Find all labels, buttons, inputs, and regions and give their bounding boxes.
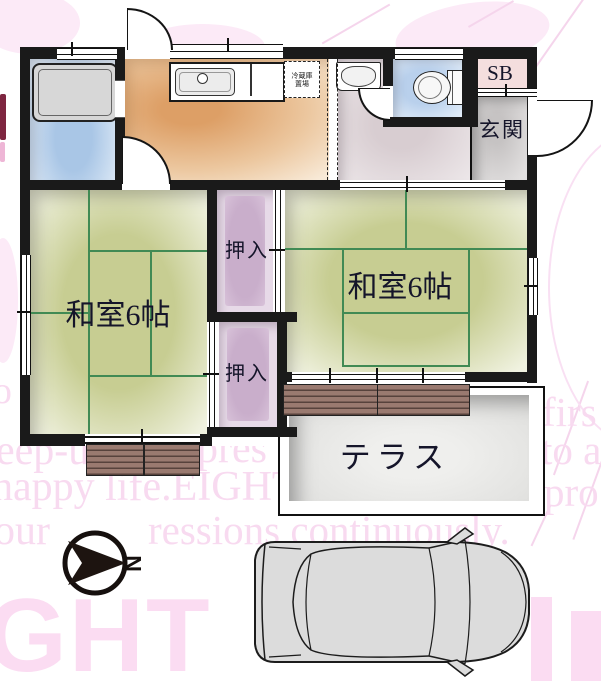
floorplan-image: co eep-u pres happy life.EIGHT our ressi…	[0, 0, 601, 681]
closet-upper-sliding	[273, 190, 283, 312]
vanity-bowl	[341, 66, 376, 87]
tatami-line	[88, 375, 207, 377]
window-tick	[227, 38, 229, 52]
kitchen-counter	[169, 62, 285, 102]
wall-closet-mid	[207, 312, 297, 322]
deck-right	[283, 384, 470, 416]
terrace-label: テラス	[300, 432, 490, 477]
wall-left	[20, 47, 30, 446]
window-tick	[329, 368, 331, 383]
window-tick	[422, 368, 424, 383]
faucet	[197, 73, 208, 84]
window-tick	[17, 311, 31, 313]
watermark-big-letters: GHT	[0, 584, 212, 681]
entrance-label: 玄関	[476, 114, 528, 144]
bathtub	[32, 63, 118, 122]
pink-edge-mark	[0, 142, 5, 162]
toilet-bowl-inner	[418, 76, 442, 99]
car-graphic	[233, 524, 535, 680]
car-mirror-top	[447, 528, 473, 544]
red-edge-mark	[0, 94, 6, 140]
rightroom-terrace-sliding	[292, 372, 465, 382]
tatami-line	[88, 250, 207, 252]
watermark-line3-left: our	[0, 510, 50, 552]
bathroom-door-opening	[115, 80, 125, 118]
deck-left	[86, 444, 200, 476]
wall-closet-left-upper	[207, 190, 217, 315]
hall-room-sliding-door	[340, 180, 505, 190]
fridge-space: 冷蔵庫 置場	[284, 61, 320, 98]
room-right-label: 和室6帖	[310, 262, 490, 306]
genkan-step-line	[470, 127, 472, 180]
room-left-label: 和室6帖	[33, 290, 203, 334]
fridge-label-1: 冷蔵庫	[292, 72, 313, 80]
car-mirror-bottom	[447, 660, 473, 676]
window-tick	[141, 429, 143, 444]
window-tick	[203, 373, 219, 375]
vanity	[336, 62, 381, 91]
watermark-frag-pro: pro	[544, 472, 599, 513]
closet-lower-label: 押入	[221, 357, 273, 386]
car-illustration	[233, 524, 535, 680]
window-tick	[524, 285, 538, 287]
compass-north-label: N	[119, 555, 146, 572]
tatami-line	[285, 248, 527, 250]
toilet-window	[395, 48, 463, 60]
toilet-tank-line	[452, 71, 453, 104]
window-tick	[406, 176, 408, 192]
car-body	[255, 542, 529, 662]
entrance-opening	[528, 97, 537, 155]
window-tick	[71, 42, 73, 56]
closet-upper-label: 押入	[221, 234, 273, 263]
shoebox-label: SB	[482, 61, 518, 86]
bathtub-inner	[38, 69, 112, 116]
tatami-line	[342, 365, 470, 367]
tatami-line	[405, 190, 407, 248]
leftroom-window	[21, 255, 31, 375]
toilet-bowl	[413, 71, 451, 104]
shoebox-counter-edge	[478, 88, 537, 97]
fridge-label-2: 置場	[295, 80, 309, 88]
counter-divider	[250, 64, 252, 96]
window-tick	[376, 368, 378, 383]
kitchen-back-door	[127, 8, 173, 50]
watermark-blob	[0, 238, 18, 363]
watermark-bar	[571, 611, 601, 681]
tatami-line	[342, 312, 470, 314]
watermark-blob	[0, 0, 80, 54]
folding-door	[327, 59, 338, 180]
watermark-line	[322, 4, 391, 45]
bathroom-window	[57, 48, 117, 60]
wall-closet-bottom	[207, 427, 297, 437]
watermark-frag-toa: to a	[541, 430, 601, 471]
watermark-frag-left: co	[0, 372, 12, 410]
entrance-door	[537, 100, 593, 157]
